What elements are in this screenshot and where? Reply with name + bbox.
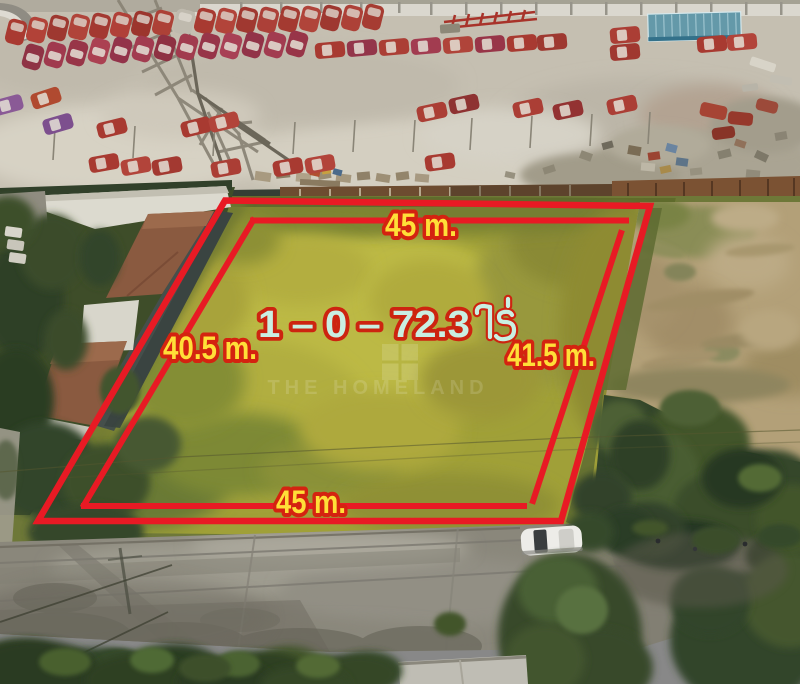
svg-text:40.5 m.: 40.5 m.: [163, 330, 257, 366]
svg-text:THE HOMELAND: THE HOMELAND: [267, 377, 488, 399]
svg-text:45 m.: 45 m.: [385, 207, 457, 243]
svg-text:45 m.: 45 m.: [276, 484, 346, 520]
svg-text:41.5 m.: 41.5 m.: [507, 337, 595, 373]
svg-text:1 – 0 – 72.3: 1 – 0 – 72.3: [258, 304, 470, 346]
